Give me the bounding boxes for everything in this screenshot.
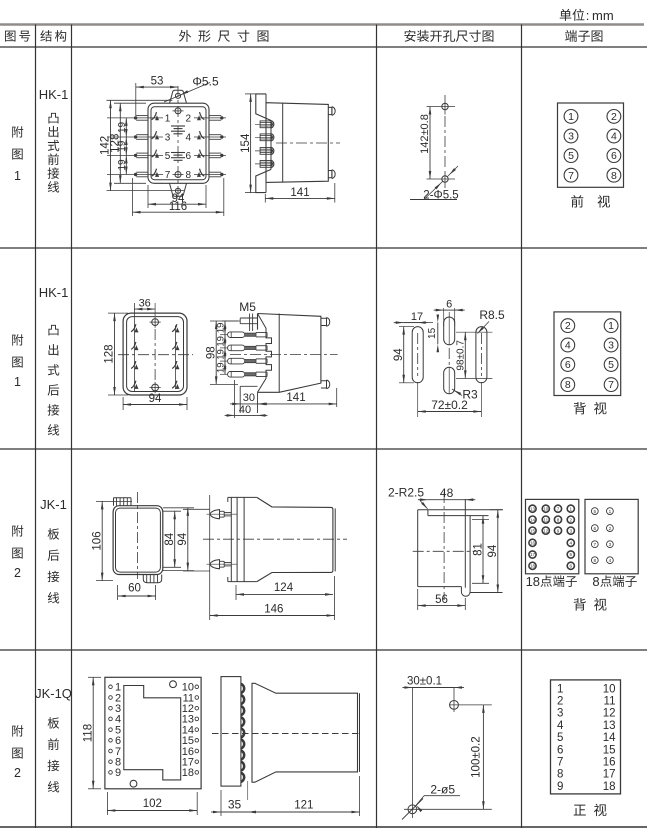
- svg-text:15: 15: [603, 744, 616, 756]
- svg-text:10: 10: [603, 683, 616, 695]
- svg-text:16: 16: [530, 541, 536, 546]
- svg-text:19: 19: [216, 362, 227, 373]
- svg-text:7: 7: [568, 170, 574, 182]
- svg-text:8: 8: [611, 170, 617, 182]
- svg-text:94: 94: [487, 544, 499, 557]
- svg-text:2-Φ5.5: 2-Φ5.5: [423, 189, 458, 201]
- svg-text:94: 94: [393, 348, 405, 361]
- svg-text:72±0.2: 72±0.2: [431, 398, 468, 412]
- svg-text:6: 6: [594, 526, 597, 531]
- svg-text:2: 2: [565, 320, 571, 332]
- svg-text:11: 11: [604, 696, 616, 708]
- svg-text:60: 60: [128, 583, 141, 595]
- svg-text:40: 40: [239, 404, 251, 416]
- svg-text:3: 3: [165, 133, 171, 144]
- svg-text:1: 1: [14, 375, 21, 389]
- svg-text:2: 2: [570, 517, 573, 522]
- svg-text:18: 18: [603, 781, 616, 793]
- svg-text:1: 1: [557, 683, 563, 695]
- svg-text:4: 4: [557, 720, 564, 732]
- svg-text:10: 10: [543, 506, 549, 511]
- svg-text:6: 6: [186, 151, 192, 162]
- svg-text:36: 36: [139, 297, 151, 309]
- svg-text:19: 19: [117, 140, 128, 152]
- svg-text:106: 106: [91, 531, 103, 550]
- svg-text:8: 8: [592, 574, 599, 589]
- svg-text:17: 17: [411, 311, 423, 323]
- svg-text:1: 1: [568, 111, 574, 123]
- svg-text:102: 102: [143, 798, 162, 810]
- svg-text:6: 6: [446, 298, 452, 310]
- svg-text:4: 4: [186, 133, 192, 144]
- svg-text:13: 13: [603, 720, 616, 732]
- svg-text:HK-1: HK-1: [39, 285, 69, 300]
- svg-text:4: 4: [565, 340, 571, 352]
- svg-text:9: 9: [557, 781, 563, 793]
- svg-text:7: 7: [608, 379, 614, 391]
- svg-text:mm: mm: [592, 8, 614, 23]
- svg-text:5: 5: [165, 151, 171, 162]
- svg-text:2: 2: [14, 766, 21, 780]
- svg-text:4: 4: [570, 541, 573, 546]
- svg-text:84: 84: [164, 532, 176, 545]
- svg-text:4: 4: [611, 131, 617, 143]
- svg-text:M5: M5: [239, 300, 256, 314]
- svg-text:3: 3: [608, 340, 614, 352]
- svg-text:6: 6: [565, 359, 571, 371]
- svg-text:19: 19: [117, 159, 128, 171]
- svg-text:17: 17: [603, 769, 616, 781]
- svg-text:53: 53: [151, 76, 164, 88]
- svg-text:2-ø5: 2-ø5: [430, 783, 455, 797]
- svg-text:7: 7: [165, 170, 171, 181]
- svg-text:17: 17: [530, 552, 536, 557]
- svg-text:98±0.7: 98±0.7: [456, 340, 467, 371]
- svg-text:3: 3: [570, 528, 573, 533]
- svg-text:1: 1: [609, 509, 612, 514]
- svg-text:5: 5: [608, 359, 614, 371]
- svg-text:5: 5: [557, 732, 563, 744]
- svg-text:6: 6: [611, 150, 617, 162]
- svg-text:15: 15: [427, 327, 438, 339]
- svg-text:128: 128: [104, 344, 116, 363]
- svg-text:7: 7: [557, 757, 563, 769]
- svg-text:56: 56: [435, 594, 448, 606]
- svg-text:13: 13: [530, 506, 536, 511]
- svg-text:146: 146: [264, 603, 283, 615]
- svg-text::: :: [586, 8, 590, 23]
- svg-text:8: 8: [565, 379, 571, 391]
- svg-text:141: 141: [286, 392, 305, 404]
- svg-text:18: 18: [182, 767, 194, 779]
- svg-text:6: 6: [570, 564, 573, 569]
- svg-text:5: 5: [568, 150, 574, 162]
- svg-text:2: 2: [609, 526, 612, 531]
- svg-text:2: 2: [611, 111, 617, 123]
- svg-text:19: 19: [117, 121, 128, 133]
- svg-text:Φ5.5: Φ5.5: [192, 75, 219, 89]
- svg-text:R8.5: R8.5: [479, 308, 505, 322]
- svg-text:4: 4: [609, 558, 612, 563]
- svg-text:3: 3: [557, 708, 563, 720]
- svg-text:5: 5: [594, 509, 597, 514]
- svg-text:8: 8: [186, 170, 192, 181]
- svg-text:3: 3: [609, 542, 612, 547]
- svg-text:11: 11: [543, 517, 548, 522]
- svg-text:2: 2: [557, 696, 563, 708]
- svg-text:12: 12: [543, 528, 549, 533]
- svg-text:18: 18: [530, 564, 536, 569]
- svg-text:JK-1: JK-1: [40, 497, 67, 512]
- svg-text:142±0.8: 142±0.8: [419, 114, 431, 154]
- svg-text:8: 8: [594, 558, 597, 563]
- svg-text:HK-1: HK-1: [39, 87, 69, 102]
- svg-text:9: 9: [115, 767, 121, 779]
- svg-text:30: 30: [243, 392, 255, 404]
- svg-text:8: 8: [557, 517, 560, 522]
- svg-text:154: 154: [240, 133, 252, 153]
- svg-text:48: 48: [440, 486, 454, 500]
- svg-text:14: 14: [530, 517, 536, 522]
- svg-text:121: 121: [294, 800, 313, 812]
- svg-text:16: 16: [603, 757, 616, 769]
- svg-text:1: 1: [608, 320, 614, 332]
- svg-text:9: 9: [557, 528, 560, 533]
- svg-text:15: 15: [530, 528, 536, 533]
- svg-text:94: 94: [177, 532, 189, 545]
- svg-text:19: 19: [216, 349, 227, 360]
- svg-text:2: 2: [14, 566, 21, 580]
- svg-text:100±0.2: 100±0.2: [471, 736, 483, 778]
- svg-text:7: 7: [594, 542, 597, 547]
- svg-text:5: 5: [570, 552, 573, 557]
- svg-text:19: 19: [216, 323, 227, 334]
- svg-text:JK-1Q: JK-1Q: [35, 686, 72, 701]
- svg-text:7: 7: [557, 506, 560, 511]
- svg-text:94: 94: [149, 393, 162, 405]
- svg-text:118: 118: [82, 724, 94, 742]
- svg-text:2: 2: [186, 114, 192, 125]
- svg-text:116: 116: [169, 201, 187, 213]
- svg-text:8: 8: [557, 769, 563, 781]
- svg-text:81: 81: [472, 543, 484, 556]
- svg-text:1: 1: [14, 169, 21, 183]
- svg-text:1: 1: [570, 506, 573, 511]
- svg-text:35: 35: [228, 798, 242, 812]
- svg-text:3: 3: [568, 131, 574, 143]
- svg-text:141: 141: [290, 187, 309, 199]
- svg-text:124: 124: [274, 582, 294, 594]
- svg-text:19: 19: [216, 336, 227, 347]
- svg-text:12: 12: [603, 708, 616, 720]
- svg-text:6: 6: [557, 744, 563, 756]
- svg-text:1: 1: [165, 114, 171, 125]
- svg-text:30±0.1: 30±0.1: [407, 675, 442, 687]
- svg-text:2-R2.5: 2-R2.5: [388, 486, 424, 500]
- svg-text:18: 18: [526, 574, 540, 589]
- svg-text:14: 14: [603, 732, 616, 744]
